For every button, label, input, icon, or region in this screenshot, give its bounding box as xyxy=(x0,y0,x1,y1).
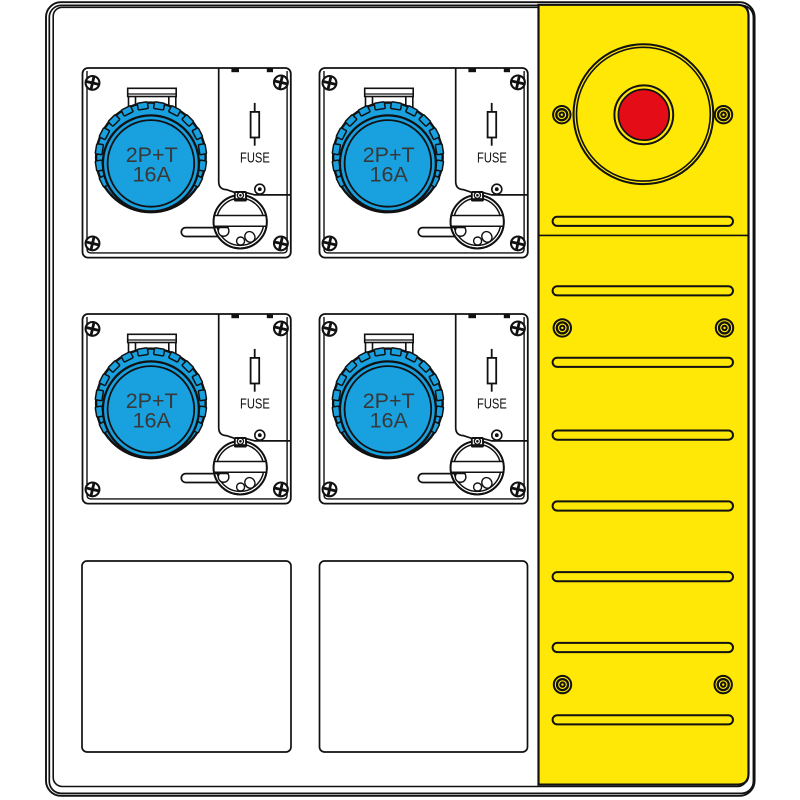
svg-text:FUSE: FUSE xyxy=(240,397,270,413)
svg-text:16A: 16A xyxy=(133,163,172,187)
svg-text:FUSE: FUSE xyxy=(477,151,507,167)
svg-text:FUSE: FUSE xyxy=(240,151,270,167)
svg-text:16A: 16A xyxy=(370,409,409,433)
svg-text:FUSE: FUSE xyxy=(477,397,507,413)
svg-text:16A: 16A xyxy=(133,409,172,433)
svg-text:16A: 16A xyxy=(370,163,409,187)
